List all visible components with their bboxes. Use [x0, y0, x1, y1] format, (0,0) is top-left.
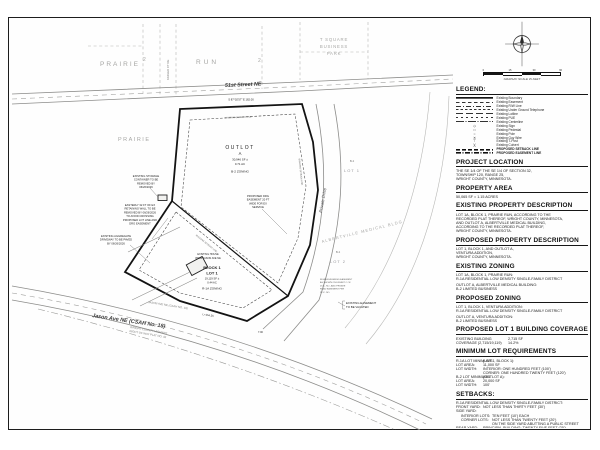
- plat-label-prairie-top: PRAIRIE: [100, 61, 140, 68]
- street-label-51st: 51st Street NE: [225, 81, 262, 89]
- adjacent-lot2-label: LOT 2: [330, 259, 346, 264]
- existing-house-label: #5150 JASON AVE NE: [195, 257, 221, 260]
- private-drive-lines: [263, 104, 341, 341]
- scale-tick: 60: [559, 69, 562, 72]
- existing-retaining-wall: [128, 227, 180, 252]
- callout-storage-container: EXISTING STORAGE CONTAINER TO BE REMOVED…: [133, 174, 160, 189]
- legend: LEGEND: Existing Boundary Existing Easem…: [456, 86, 588, 155]
- section-building-coverage: PROPOSED LOT 1 BUILDING COVERAGE EXISTIN…: [456, 326, 588, 345]
- svg-text:INGRESS/EGRESS EASEMENT: INGRESS/EGRESS EASEMENT: [320, 278, 353, 281]
- plat-label-prairie-left: PRAIRIE: [118, 137, 151, 143]
- existing-house-label: EXISTING HOUSE: [197, 253, 219, 256]
- section-project-location: PROJECT LOCATION THE SE 1/4 OF THE SE 1/…: [456, 159, 588, 182]
- svg-text:PROPOSED DRG: PROPOSED DRG: [247, 194, 269, 198]
- building-setback-line-label: BUILDING SETBACK LINE: [298, 159, 304, 186]
- callout-easement-vacate: EXISTING EASEMENT TO BE VACATED: [346, 301, 376, 309]
- info-panel: 0 15 30 60 GRAPHIC SCALE IN FEET LEGEND:…: [456, 20, 588, 428]
- section-title: PROPERTY AREA: [456, 185, 588, 194]
- north-boundary-bearing: S 87°02'57" E 182.00: [228, 98, 254, 102]
- adjacent-zoning-label: B-2: [350, 159, 355, 163]
- outlot-area-sf: 30,946 SF ±: [232, 158, 248, 162]
- svg-text:EXISTING STORAGE: EXISTING STORAGE: [133, 174, 160, 178]
- section-title: PROPOSED PROPERTY DESCRIPTION: [456, 237, 588, 246]
- svg-text:06/26/2026: 06/26/2026: [139, 185, 153, 189]
- text-line: WRIGHT COUNTY, MINNESOTA.: [456, 229, 588, 233]
- text-line: R-1A RESIDENTIAL LOW DENSITY SINGLE-FAMI…: [456, 309, 588, 313]
- adjacent-zoning-label: B-2: [336, 250, 341, 254]
- outlot-area-ac: 0.71 AC: [235, 162, 245, 166]
- setback-row: REAR YARD:PRINCIPAL BUILDING: TWENTY-FIV…: [456, 426, 588, 428]
- graphic-scale-bar: 0 15 30 60 GRAPHIC SCALE IN FEET: [479, 69, 565, 84]
- svg-text:DRIVEWAY TO BE PAVED: DRIVEWAY TO BE PAVED: [100, 238, 132, 242]
- section-existing-zoning: EXISTING ZONING LOT 1A, BLOCK 1, PRAIRIE…: [456, 263, 588, 291]
- street-label-private-drive: Private Drive: [318, 187, 327, 213]
- lot1-area-ac: 0.44 AC: [207, 281, 217, 285]
- svg-text:WIDE FOR EX: WIDE FOR EX: [249, 201, 267, 205]
- section-title: EXISTING PROPERTY DESCRIPTION: [456, 202, 588, 211]
- building-setback-line-label: BUILDING SETBACK LINE: [225, 116, 252, 120]
- text-line: B-2 LIMITED BUSINESS: [456, 287, 588, 291]
- svg-text:REMOVED BY: REMOVED BY: [137, 181, 155, 185]
- svg-text:DOC. NO., AND PRIVATE: DOC. NO., AND PRIVATE: [320, 284, 346, 287]
- svg-text:TO BE VACATED: TO BE VACATED: [346, 305, 369, 309]
- svg-text:AS SHOWN ON EXHIBIT C OF: AS SHOWN ON EXHIBIT C OF: [320, 281, 351, 284]
- scale-tick: 0: [483, 69, 484, 72]
- section-setbacks: SETBACKS: R-1A RESIDENTIAL LOW DENSITY S…: [456, 391, 588, 428]
- svg-text:TO AVOID CROSSING: TO AVOID CROSSING: [126, 214, 154, 218]
- scale-tick-labels: 0 15 30 60: [479, 69, 565, 72]
- text-line: B-2 LIMITED BUSINESS: [456, 319, 588, 323]
- lot1-zoning: R-1A ZONING: [202, 287, 222, 291]
- section-existing-property-description: EXISTING PROPERTY DESCRIPTION LOT 1A, BL…: [456, 202, 588, 233]
- plat-number: 2: [258, 58, 261, 64]
- svg-text:CONTAINER TO BE: CONTAINER TO BE: [134, 178, 159, 182]
- section-title: PROPOSED LOT 1 BUILDING COVERAGE: [456, 326, 588, 335]
- coverage-label: COVERAGE (2,715/19,119): [456, 341, 508, 345]
- lot1-lot-label: LOT 1: [206, 271, 218, 276]
- section-title: PROJECT LOCATION: [456, 159, 588, 168]
- svg-text:EASTERLY 32 FT OF EX: EASTERLY 32 FT OF EX: [125, 203, 156, 207]
- text-line: 50,065 SF = 1.15 ACRES: [456, 195, 588, 199]
- section-title: SETBACKS:: [456, 391, 588, 400]
- site-plan-drawing: PRAIRIE 2 RUN 2 T SQUARE BUSINESS PARK P…: [8, 17, 458, 430]
- section-title: PROPOSED ZONING: [456, 295, 588, 304]
- text-line: WRIGHT COUNTY, MINNESOTA.: [456, 255, 588, 259]
- section-title: EXISTING ZONING: [456, 263, 588, 272]
- callout-drg-easement: PROPOSED DRG EASEMENT 20 FT WIDE FOR EX …: [247, 194, 270, 209]
- requirement-row: LOT WIDTH:100': [456, 383, 588, 387]
- north-arrow-compass: [494, 20, 550, 68]
- plat-label-tsquare: T SQUARE: [320, 37, 348, 42]
- section-proposed-property-description: PROPOSED PROPERTY DESCRIPTION LOT 1, BLO…: [456, 237, 588, 260]
- scale-tick: 15: [509, 69, 512, 72]
- svg-text:BY 06/26/2026: BY 06/26/2026: [107, 241, 125, 245]
- section-title: MINIMUM LOT REQUIREMENTS: [456, 348, 588, 357]
- svg-text:EASEMENT 20 FT: EASEMENT 20 FT: [247, 198, 270, 202]
- curve-length-dimension: L=154.35: [202, 312, 214, 318]
- lot1-block-label: BLOCK 1: [203, 265, 221, 270]
- svg-text:PROPOSED LOT LINE AND: PROPOSED LOT LINE AND: [123, 218, 157, 222]
- existing-storage-container: [158, 195, 167, 201]
- callout-aggregate-driveway: EXISTING AGGREGATE DRIVEWAY TO BE PAVED …: [100, 234, 132, 245]
- scale-caption: GRAPHIC SCALE IN FEET: [479, 77, 565, 81]
- plat-label-tsquare: BUSINESS: [320, 44, 348, 49]
- callout-retaining-wall: EASTERLY 32 FT OF EX RETAINING WALL TO B…: [123, 203, 157, 226]
- coverage-row: COVERAGE (2,715/19,119)14.2%: [456, 341, 588, 345]
- section-proposed-zoning: PROPOSED ZONING LOT 1, BLOCK 1, VENTURA …: [456, 295, 588, 323]
- scale-bar: [483, 72, 561, 75]
- svg-text:DRG EASEMENT: DRG EASEMENT: [129, 222, 151, 226]
- lot1-area-sf: 19,119 SF ±: [205, 277, 220, 281]
- outlot-zoning: B-2 ZONING: [231, 170, 249, 174]
- scale-tick: 30: [533, 69, 536, 72]
- svg-text:DOC. NO.: DOC. NO.: [320, 292, 330, 294]
- plat-number: 2: [143, 57, 146, 63]
- svg-text:EXISTING AGGREGATE: EXISTING AGGREGATE: [101, 234, 131, 238]
- legend-title: LEGEND:: [456, 86, 588, 95]
- text-line: R-1A RESIDENTIAL LOW DENSITY SINGLE-FAMI…: [456, 277, 588, 281]
- legend-sample-proposed-easement-line: [456, 151, 493, 155]
- plat-label-albertville-medical: ALBERTVILLE MEDICAL BLDG: [321, 219, 403, 244]
- dimension-7ft: 7.00: [258, 331, 263, 334]
- legend-item-label: PROPOSED EASEMENT LINE: [497, 151, 542, 155]
- adjacent-lot1-label: LOT 1: [344, 168, 360, 173]
- svg-text:ROAD EASEMENT PER: ROAD EASEMENT PER: [320, 288, 344, 291]
- section-minimum-lot-requirements: MINIMUM LOT REQUIREMENTS R-1A LOT MINIMU…: [456, 348, 588, 387]
- street-label-jason-ave: Jason Ave NE (CSAH No. 18): [92, 313, 166, 330]
- svg-text:REMOVED BY 06/26/2026: REMOVED BY 06/26/2026: [124, 210, 157, 214]
- outlot-letter: A: [239, 151, 242, 156]
- svg-text:SERVICE: SERVICE: [252, 205, 264, 209]
- callout-ingress-egress-easement: INGRESS/EGRESS EASEMENT AS SHOWN ON EXHI…: [320, 278, 353, 294]
- compass-wrap: [456, 20, 588, 68]
- section-property-area: PROPERTY AREA 50,065 SF = 1.15 ACRES: [456, 185, 588, 199]
- street-label-kadler-ct: KADLER CT NE: [166, 60, 170, 80]
- coverage-value: 14.2%: [508, 341, 518, 345]
- building-setback-lines: [139, 114, 306, 308]
- plat-label-tsquare: PARK: [327, 51, 342, 56]
- plat-label-run: RUN: [196, 59, 219, 66]
- existing-driveway-lines: [132, 272, 197, 306]
- svg-text:RETAINING WALL TO BE: RETAINING WALL TO BE: [124, 207, 155, 211]
- jason-ave-lines: [12, 286, 432, 430]
- text-line: WRIGHT COUNTY, MINNESOTA.: [456, 177, 588, 181]
- legend-item: PROPOSED EASEMENT LINE: [456, 151, 588, 155]
